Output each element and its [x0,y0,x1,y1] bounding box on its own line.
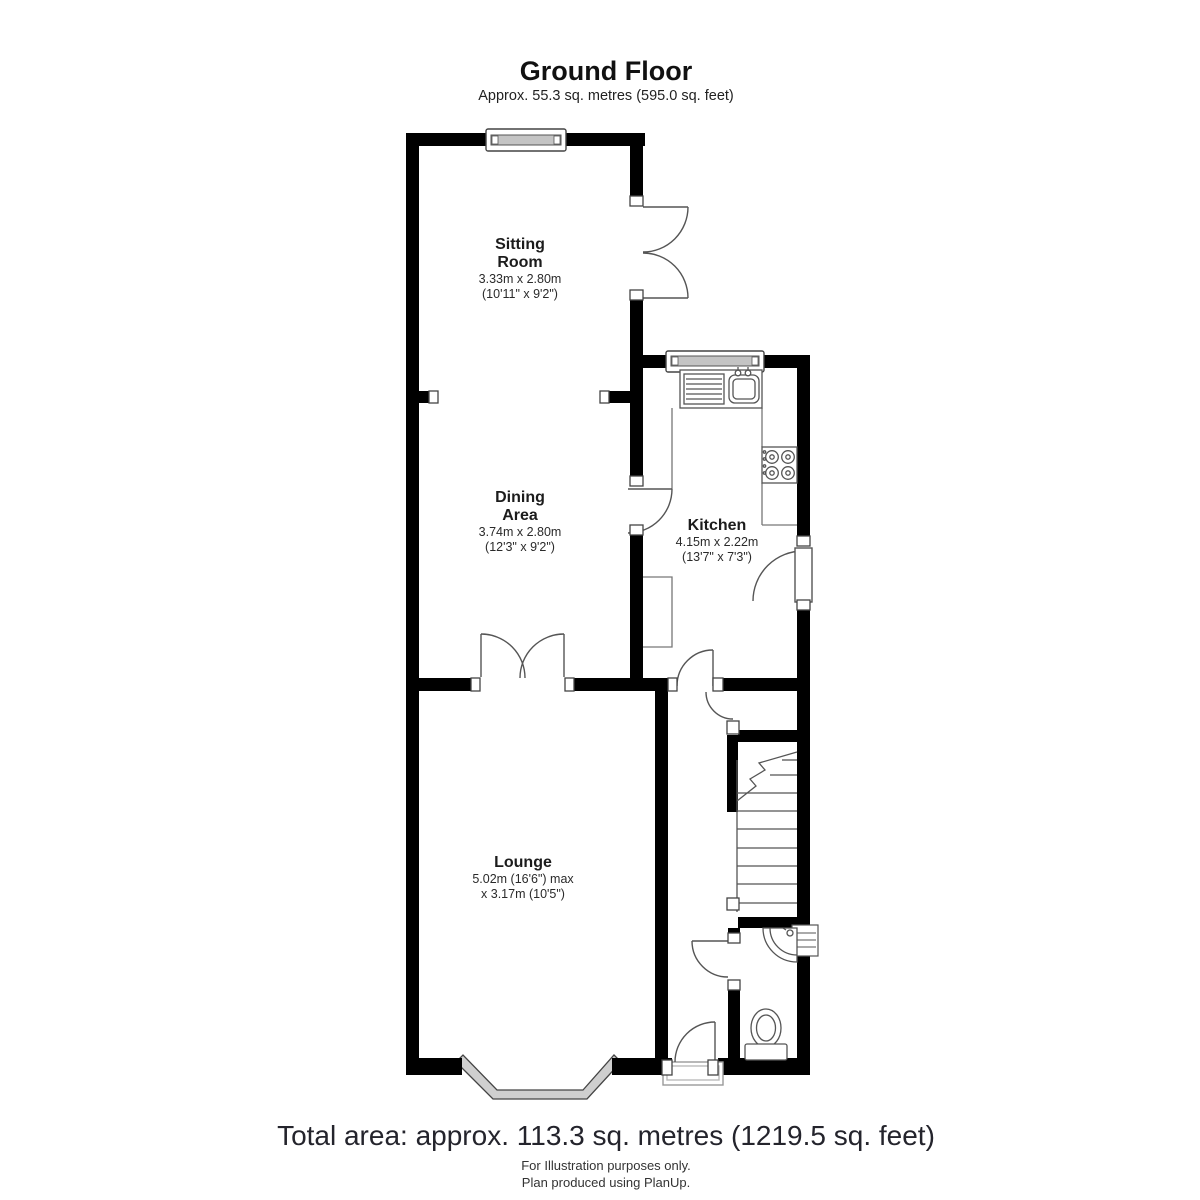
sink-unit [680,367,762,408]
door-hall-lobby [706,692,733,719]
door-hall-to-kitchen [677,650,713,686]
wall-end-caps [429,196,810,1075]
total-area-text: Total area: approx. 113.3 sq. metres (12… [0,1120,1200,1152]
room-dims-imperial: (13'7" x 7'3") [642,550,792,565]
floorplan-drawing [0,0,1200,1200]
room-name: Dining Area [445,489,595,525]
hob [762,447,797,483]
room-dims-imperial: (10'11" x 9'2") [445,287,595,302]
doors [481,207,812,1085]
wc-fixtures [745,928,797,1060]
french-doors-sitting-room [643,207,688,298]
room-name: Sitting Room [445,236,595,272]
room-dims-metric: 3.74m x 2.80m [445,525,595,540]
room-dims-metric: 4.15m x 2.22m [642,535,792,550]
sitting-room-window [486,129,566,151]
room-dims-metric: 3.33m x 2.80m [445,272,595,287]
room-label-sitting-room: Sitting Room 3.33m x 2.80m (10'11" x 9'2… [445,236,595,303]
disclaimer-line-2: Plan produced using PlanUp. [0,1175,1200,1190]
corner-basin [763,928,797,962]
room-name: Kitchen [642,517,792,535]
disclaimer-line-1: For Illustration purposes only. [0,1158,1200,1173]
room-dims-imperial: (12'3" x 9'2") [445,540,595,555]
double-doors-dining-to-lounge [481,634,564,678]
room-label-kitchen: Kitchen 4.15m x 2.22m (13'7" x 7'3") [642,517,792,566]
staircase [737,752,797,912]
room-name: Lounge [448,854,598,872]
room-dims-metric: 5.02m (16'6") max [448,872,598,887]
kitchen-fixtures [643,367,797,647]
toilet [745,1009,787,1060]
room-dims-imperial: x 3.17m (10'5") [448,887,598,902]
door-hall-to-wc [692,941,728,977]
kitchen-window [666,351,764,372]
room-label-lounge: Lounge 5.02m (16'6") max x 3.17m (10'5") [448,854,598,903]
bay-window [456,1055,621,1099]
room-label-dining-area: Dining Area 3.74m x 2.80m (12'3" x 9'2") [445,489,595,556]
floorplan-page: Ground Floor Approx. 55.3 sq. metres (59… [0,0,1200,1200]
